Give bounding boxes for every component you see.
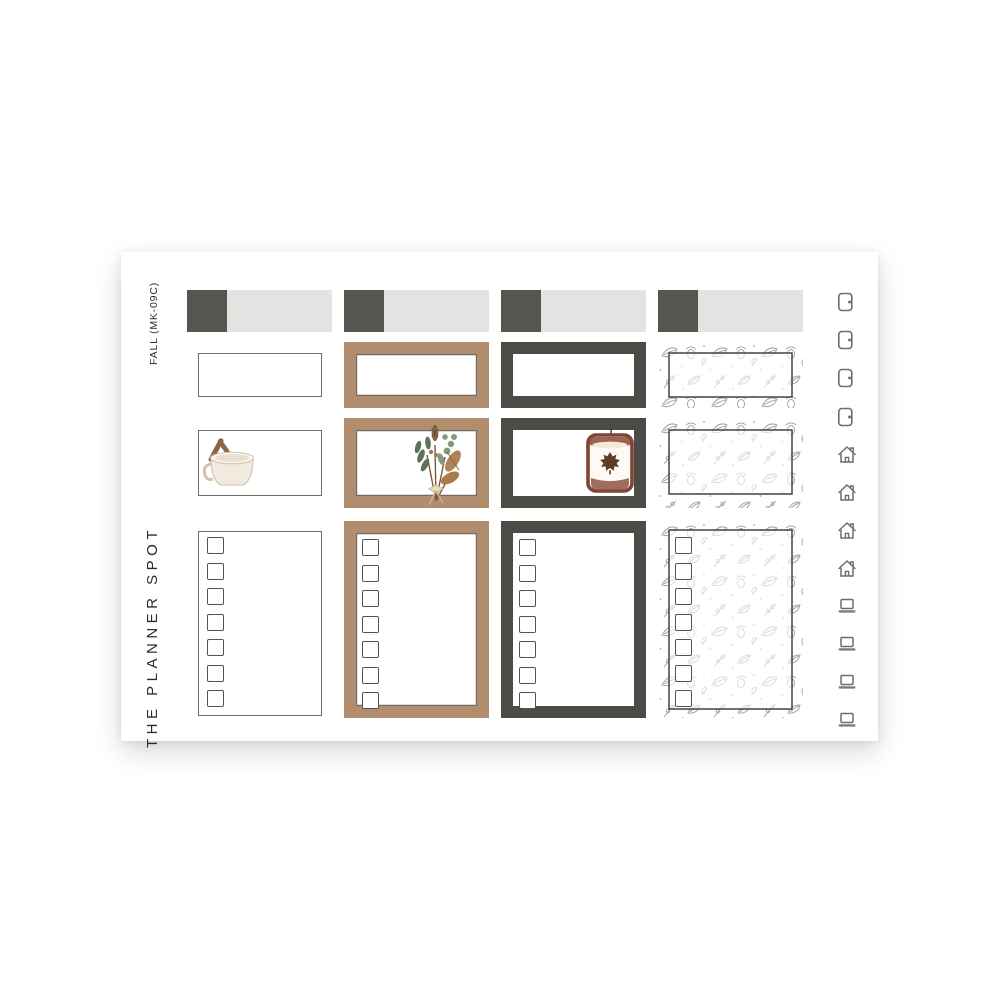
header-bar-sticker [658,290,803,332]
checkbox [362,641,379,658]
checkbox [362,539,379,556]
blank-box-sticker [344,342,489,408]
checkbox-column [207,537,224,707]
checklist-box-sticker [344,521,489,718]
checkbox [362,692,379,709]
mixing-bowl-illustration [200,434,262,494]
laptop-icon [837,712,857,732]
header-dark-square [658,290,698,332]
blank-box-sticker [501,342,646,408]
checkbox [362,565,379,582]
checkbox [519,539,536,556]
checkbox [675,614,692,631]
pattern-checklist-box-sticker [658,521,803,718]
checkbox [207,665,224,682]
checklist-box-sticker [501,521,646,718]
header-bar-sticker [344,290,489,332]
checklist-box-sticker [198,531,322,716]
checkbox [519,692,536,709]
fall-doodle-pattern [658,342,803,408]
checkbox [362,590,379,607]
checkbox [675,563,692,580]
checkbox [675,690,692,707]
door-icon [837,407,857,427]
checkbox [207,614,224,631]
checkbox [675,537,692,554]
home-icon [837,483,857,503]
home-icon [837,559,857,579]
door-icon [837,368,857,388]
checkbox [519,590,536,607]
product-photo: FALL (MK-09C) THE PLANNER SPOT [0,0,1000,1000]
header-light-bar [698,290,803,332]
home-icon [837,445,857,465]
door-icon [837,292,857,312]
sticker-sheet: FALL (MK-09C) THE PLANNER SPOT [121,252,878,741]
checkbox [207,639,224,656]
checkbox [207,690,224,707]
header-bar-sticker [187,290,332,332]
checkbox [207,537,224,554]
checkbox [519,616,536,633]
header-dark-square [187,290,227,332]
header-dark-square [344,290,384,332]
checkbox [519,641,536,658]
laptop-icon [837,598,857,618]
header-light-bar [541,290,646,332]
checkbox [675,639,692,656]
fall-bouquet-illustration [401,421,471,507]
checkbox [362,667,379,684]
header-light-bar [227,290,332,332]
checkbox [362,616,379,633]
checkbox [207,563,224,580]
header-dark-square [501,290,541,332]
kit-code-label: FALL (MK-09C) [149,282,160,365]
fall-doodle-pattern [658,418,803,508]
blank-box-sticker [198,353,322,397]
checkbox [519,667,536,684]
checkbox [207,588,224,605]
checkbox-column [519,539,536,709]
laptop-icon [837,674,857,694]
fall-candle-illustration [584,426,636,494]
home-icon [837,521,857,541]
checkbox-column [675,537,692,707]
header-bar-sticker [501,290,646,332]
checkbox-column [362,539,379,709]
checkbox [675,665,692,682]
pattern-blank-box-sticker [658,342,803,408]
pattern-blank-box-sticker [658,418,803,508]
checkbox [519,565,536,582]
laptop-icon [837,636,857,656]
door-icon [837,330,857,350]
header-light-bar [384,290,489,332]
brand-label: THE PLANNER SPOT [145,526,160,748]
checkbox [675,588,692,605]
